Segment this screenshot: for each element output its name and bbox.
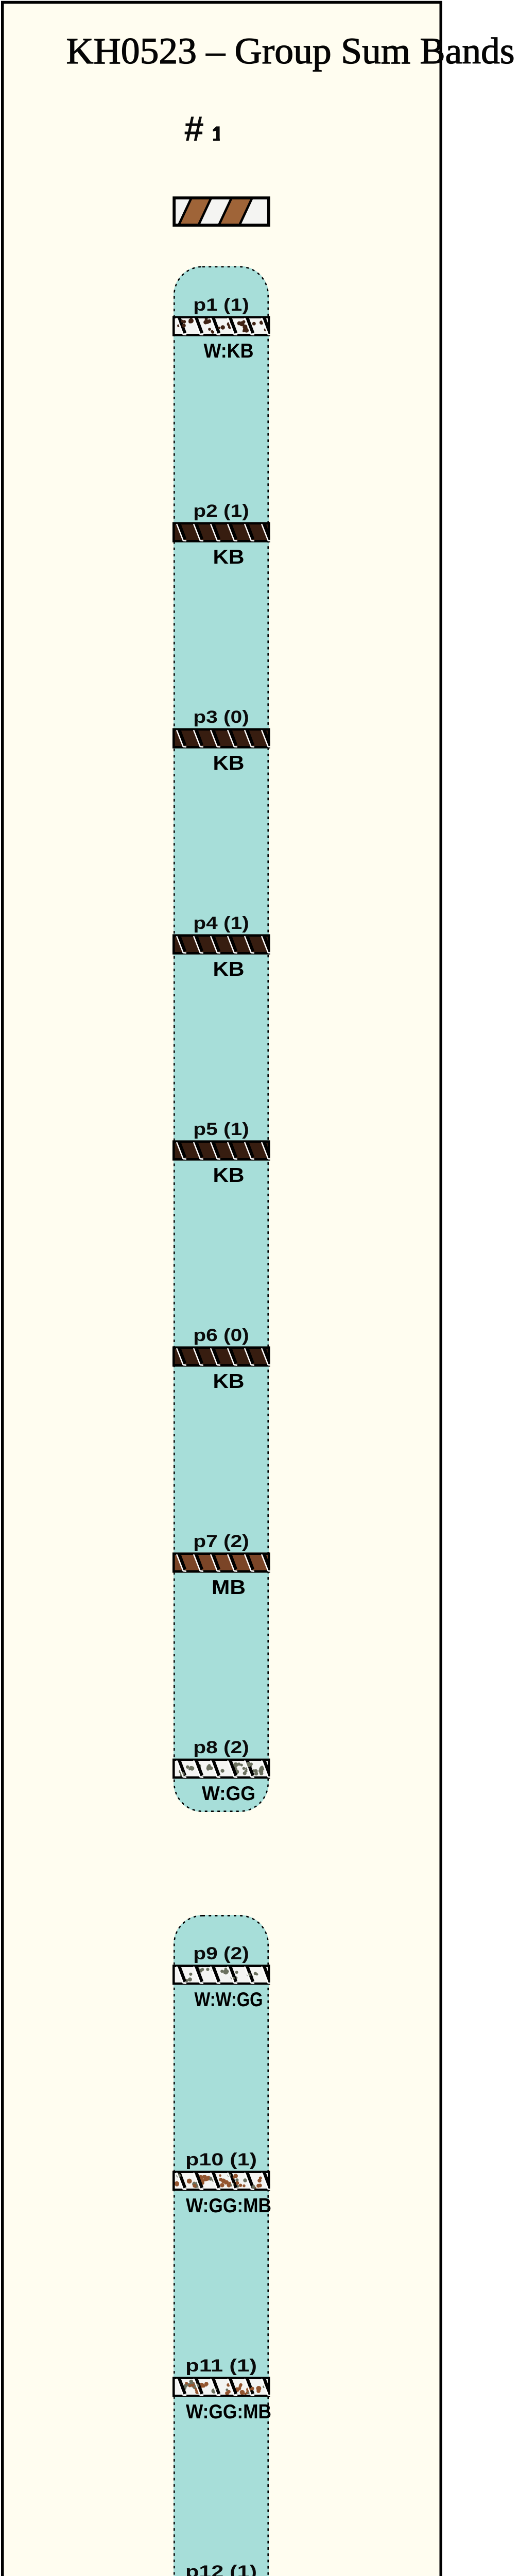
svg-text:p8 (2): p8 (2) [193, 1738, 249, 1757]
svg-text:W:GG: W:GG [202, 1783, 255, 1805]
svg-text:p5 (1): p5 (1) [193, 1120, 249, 1139]
svg-text:p12 (1): p12 (1) [185, 2562, 257, 2576]
svg-text:KH0523 – Group Sum Bands: KH0523 – Group Sum Bands [66, 30, 515, 72]
svg-text:W:KB: W:KB [204, 340, 254, 362]
svg-text:p2 (1): p2 (1) [193, 501, 249, 521]
svg-text:p4 (1): p4 (1) [193, 913, 249, 933]
svg-text:W:W:GG: W:W:GG [195, 1989, 263, 2011]
svg-text:p6 (0): p6 (0) [193, 1326, 249, 1345]
svg-text:KB: KB [213, 1164, 245, 1187]
svg-text:KB: KB [213, 1370, 245, 1393]
svg-text:MB: MB [212, 1577, 246, 1599]
svg-text:KB: KB [213, 958, 245, 980]
svg-text:KB: KB [213, 546, 245, 568]
svg-text:#: # [184, 109, 204, 149]
svg-text:p1 (1): p1 (1) [193, 295, 249, 315]
svg-text:p9 (2): p9 (2) [193, 1944, 249, 1963]
svg-text:p3 (0): p3 (0) [193, 707, 249, 727]
svg-text:KB: KB [213, 752, 245, 774]
svg-text:p11 (1): p11 (1) [185, 2356, 257, 2376]
svg-text:W:GG:MB: W:GG:MB [186, 2195, 271, 2217]
svg-text:p10 (1): p10 (1) [185, 2150, 257, 2170]
svg-text:p7 (2): p7 (2) [193, 1532, 249, 1551]
svg-text:W:GG:MB: W:GG:MB [186, 2401, 271, 2423]
